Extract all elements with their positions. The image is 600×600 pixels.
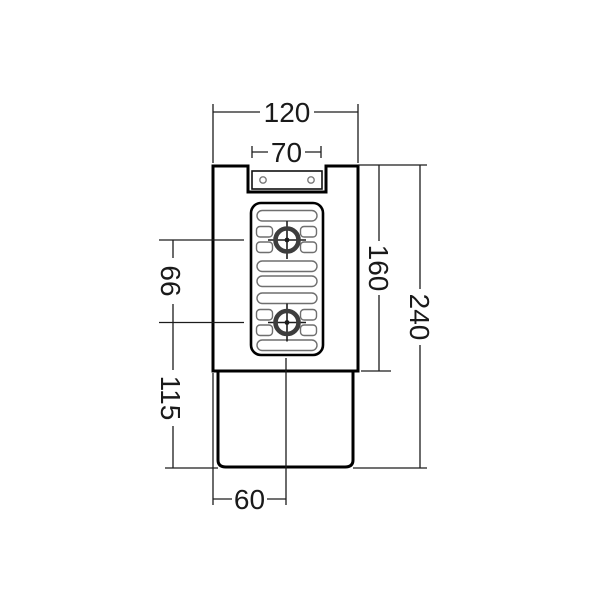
dim-label-screw-spacing: 66 <box>155 265 186 296</box>
dim-label-overall-width: 120 <box>264 97 311 128</box>
grille-slot-short <box>257 310 273 321</box>
dim-label-body-height: 160 <box>363 245 394 292</box>
dim-label-outlet-height: 115 <box>155 376 186 421</box>
drain-grille <box>251 203 323 355</box>
technical-drawing: 120 70 66 115 160 240 60 <box>0 0 600 600</box>
grille-slot-short <box>301 242 317 253</box>
grille-slot <box>257 340 317 351</box>
grille-slot-short <box>301 227 317 238</box>
grille-slot-short <box>301 325 317 336</box>
grille-slot-short <box>301 310 317 321</box>
inlet-hole-left-icon <box>260 177 266 183</box>
grille-slot <box>257 261 317 272</box>
grille-slot <box>257 276 317 287</box>
dim-label-overall-height: 240 <box>404 294 435 341</box>
grille-slot-short <box>257 227 273 238</box>
grille-slot <box>257 211 317 222</box>
drawing-canvas: 120 70 66 115 160 240 60 <box>0 0 600 600</box>
dim-label-outlet-offset: 60 <box>234 484 265 515</box>
inlet-hole-right-icon <box>308 177 314 183</box>
grille-slot-short <box>257 242 273 253</box>
grille-slot <box>257 293 317 304</box>
grille-slot-short <box>257 325 273 336</box>
dim-label-inlet-width: 70 <box>271 137 302 168</box>
